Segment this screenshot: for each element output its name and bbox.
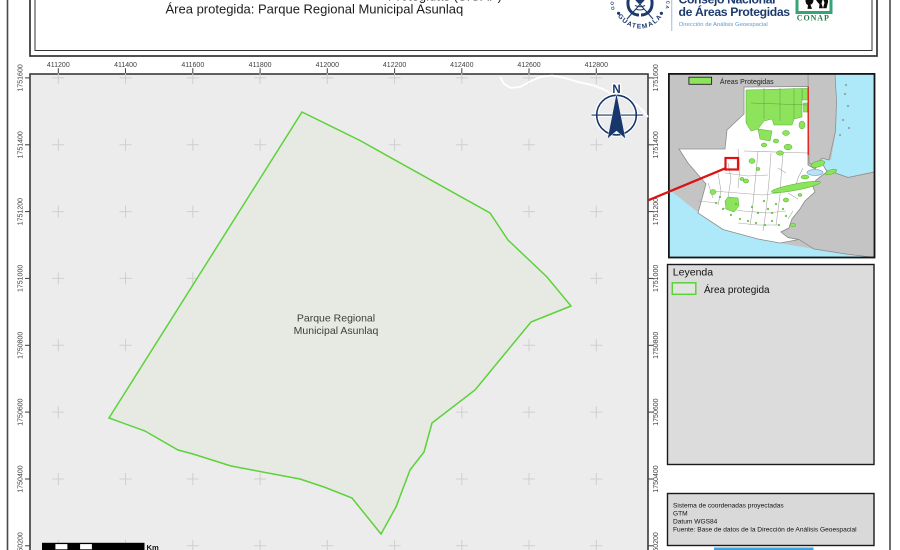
svg-text:1750800: 1750800 — [653, 332, 660, 359]
svg-text:1751600: 1751600 — [18, 64, 25, 91]
svg-text:1751400: 1751400 — [653, 131, 660, 158]
svg-text:Sistema de coordenadas proyect: Sistema de coordenadas proyectadas — [673, 502, 784, 509]
svg-text:1751000: 1751000 — [18, 265, 25, 292]
svg-text:1751200: 1751200 — [653, 198, 660, 225]
svg-text:CONAP: CONAP — [797, 14, 830, 23]
svg-text:412400: 412400 — [450, 62, 473, 69]
svg-text:411400: 411400 — [114, 62, 137, 69]
svg-text:412800: 412800 — [585, 62, 608, 69]
svg-text:411200: 411200 — [47, 62, 70, 69]
svg-text:Km: Km — [147, 543, 159, 550]
svg-text:Área protegida: Área protegida — [704, 283, 770, 296]
svg-text:1750200: 1750200 — [653, 532, 660, 550]
svg-text:411800: 411800 — [249, 62, 272, 69]
svg-text:de Áreas Protegidas: de Áreas Protegidas — [679, 4, 791, 19]
svg-text:Leyenda: Leyenda — [673, 266, 713, 278]
svg-text:1751600: 1751600 — [653, 64, 660, 91]
svg-text:412200: 412200 — [383, 62, 406, 69]
svg-text:1750600: 1750600 — [653, 398, 660, 425]
svg-text:412000: 412000 — [316, 62, 339, 69]
svg-text:1750400: 1750400 — [653, 465, 660, 492]
svg-text:1750200: 1750200 — [18, 532, 25, 550]
svg-text:Áreas Protegidas: Áreas Protegidas — [720, 77, 774, 86]
svg-text:Dirección de Análisis Geoespac: Dirección de Análisis Geoespacial — [679, 22, 768, 28]
svg-text:Parque Regional: Parque Regional — [297, 313, 375, 325]
svg-text:1750400: 1750400 — [18, 465, 25, 492]
svg-text:1751200: 1751200 — [18, 198, 25, 225]
svg-text:Datum WGS84: Datum WGS84 — [673, 518, 718, 525]
svg-text:Fuente: Base de datos de la Di: Fuente: Base de datos de la Dirección de… — [673, 526, 857, 533]
svg-text:1751000: 1751000 — [653, 265, 660, 292]
svg-text:Área protegida: Parque Regiona: Área protegida: Parque Regional Municipa… — [166, 2, 464, 17]
svg-text:1750800: 1750800 — [18, 332, 25, 359]
svg-text:Municipal Asunlaq: Municipal Asunlaq — [294, 325, 379, 337]
svg-text:GTM: GTM — [673, 510, 688, 517]
svg-text:411600: 411600 — [181, 62, 204, 69]
svg-text:412600: 412600 — [517, 62, 540, 69]
svg-text:1751400: 1751400 — [18, 131, 25, 158]
svg-text:N: N — [612, 84, 620, 96]
svg-text:1750600: 1750600 — [18, 398, 25, 425]
